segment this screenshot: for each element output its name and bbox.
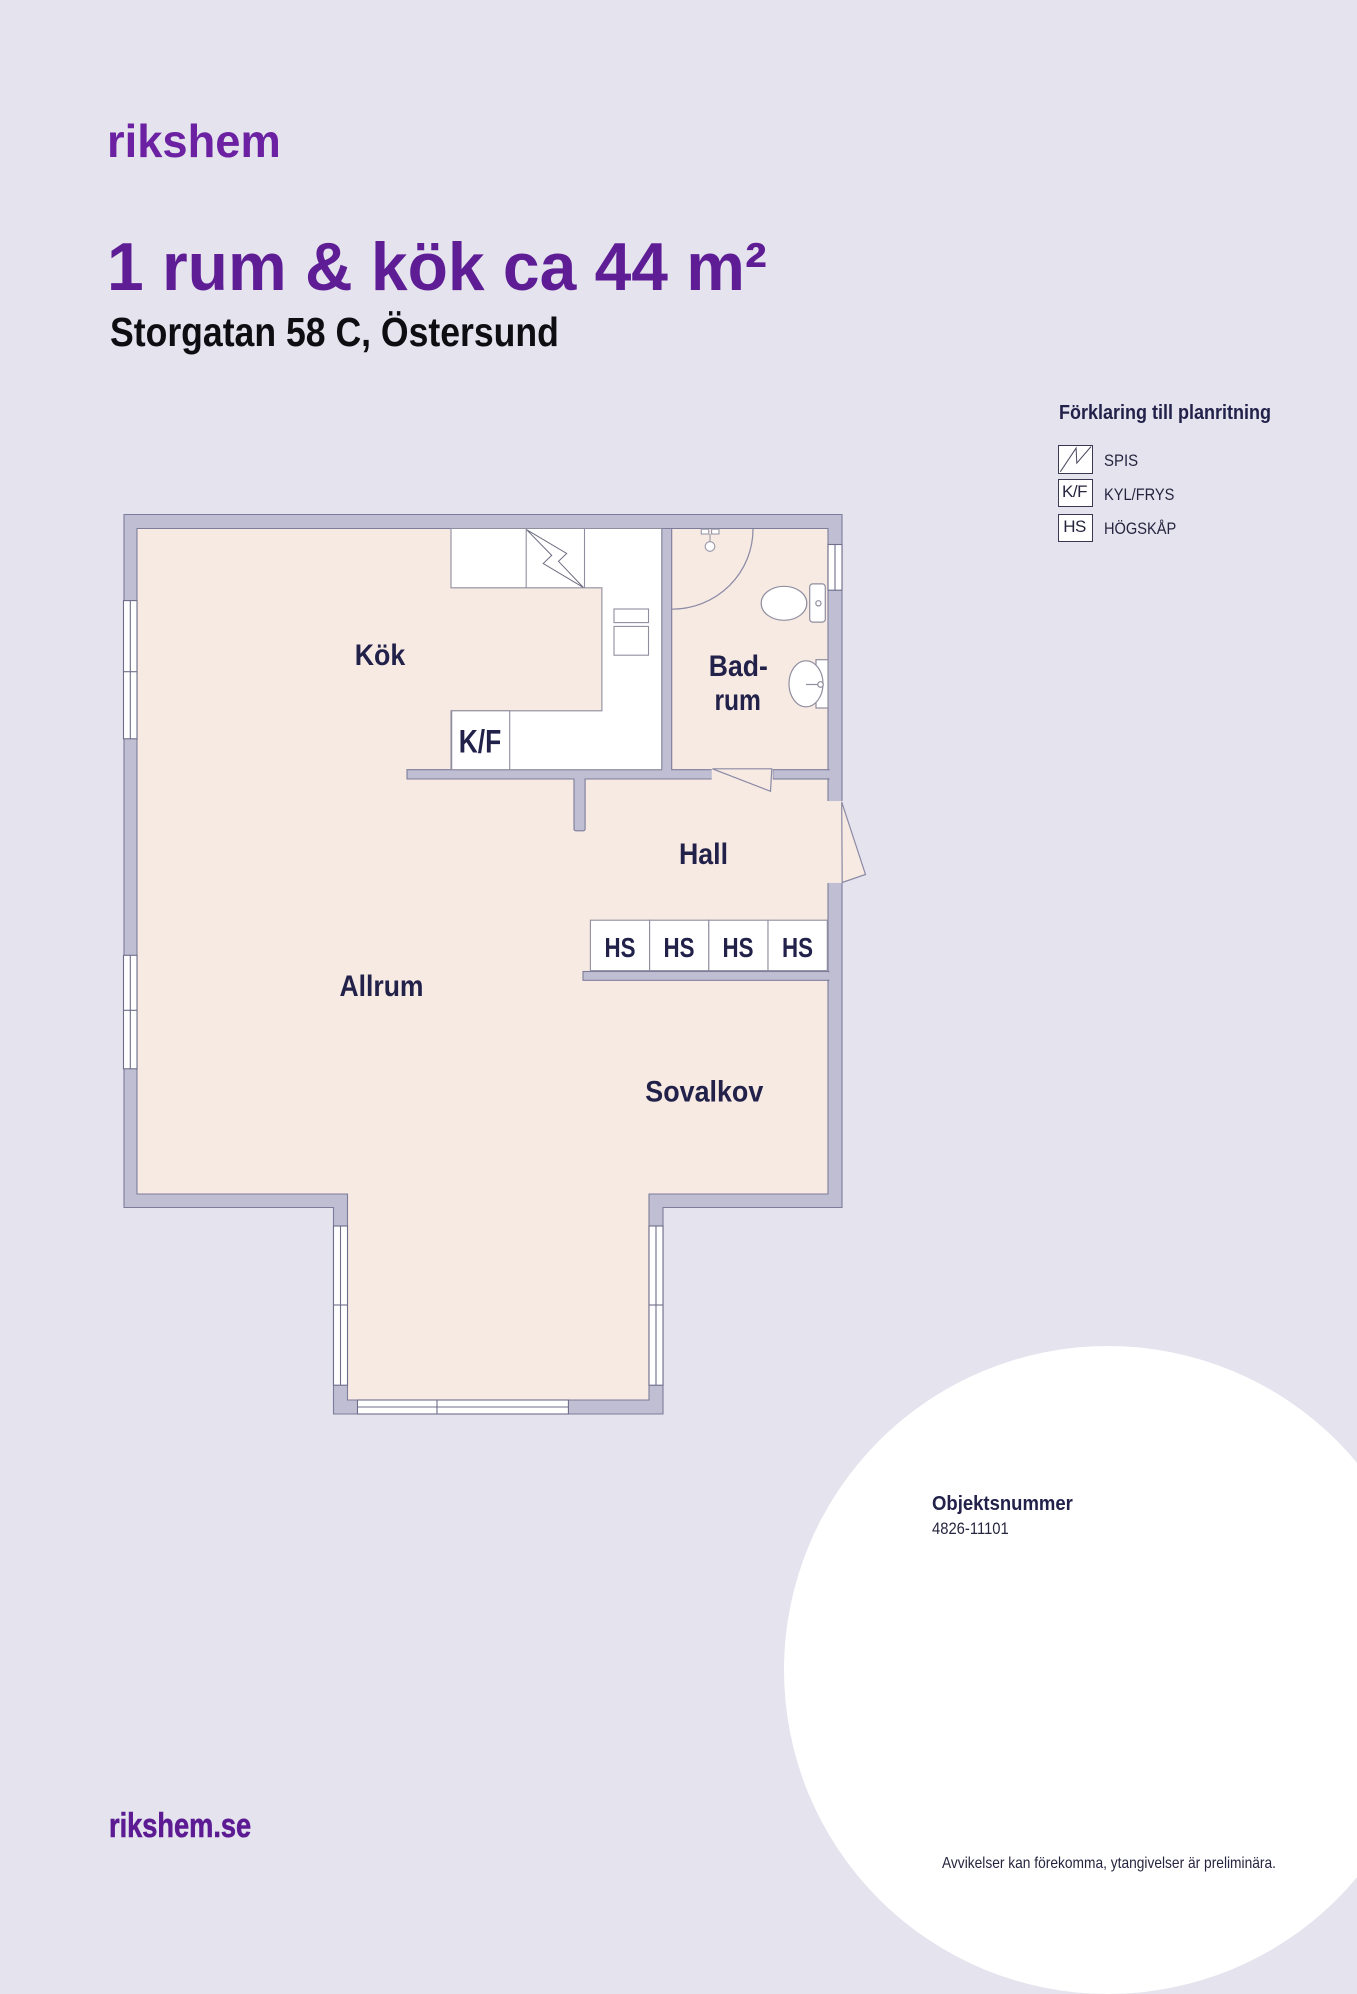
svg-text:Allrum: Allrum — [340, 970, 424, 1003]
svg-text:Sovalkov: Sovalkov — [645, 1076, 763, 1109]
svg-text:HS: HS — [664, 932, 695, 963]
svg-text:HS: HS — [782, 932, 813, 963]
svg-text:K/F: K/F — [459, 724, 502, 760]
svg-text:rum: rum — [714, 684, 761, 717]
svg-text:Kök: Kök — [355, 639, 406, 672]
svg-text:HS: HS — [723, 932, 754, 963]
svg-text:Bad-: Bad- — [709, 650, 768, 683]
svg-text:HS: HS — [605, 932, 636, 963]
svg-text:Hall: Hall — [679, 838, 728, 871]
